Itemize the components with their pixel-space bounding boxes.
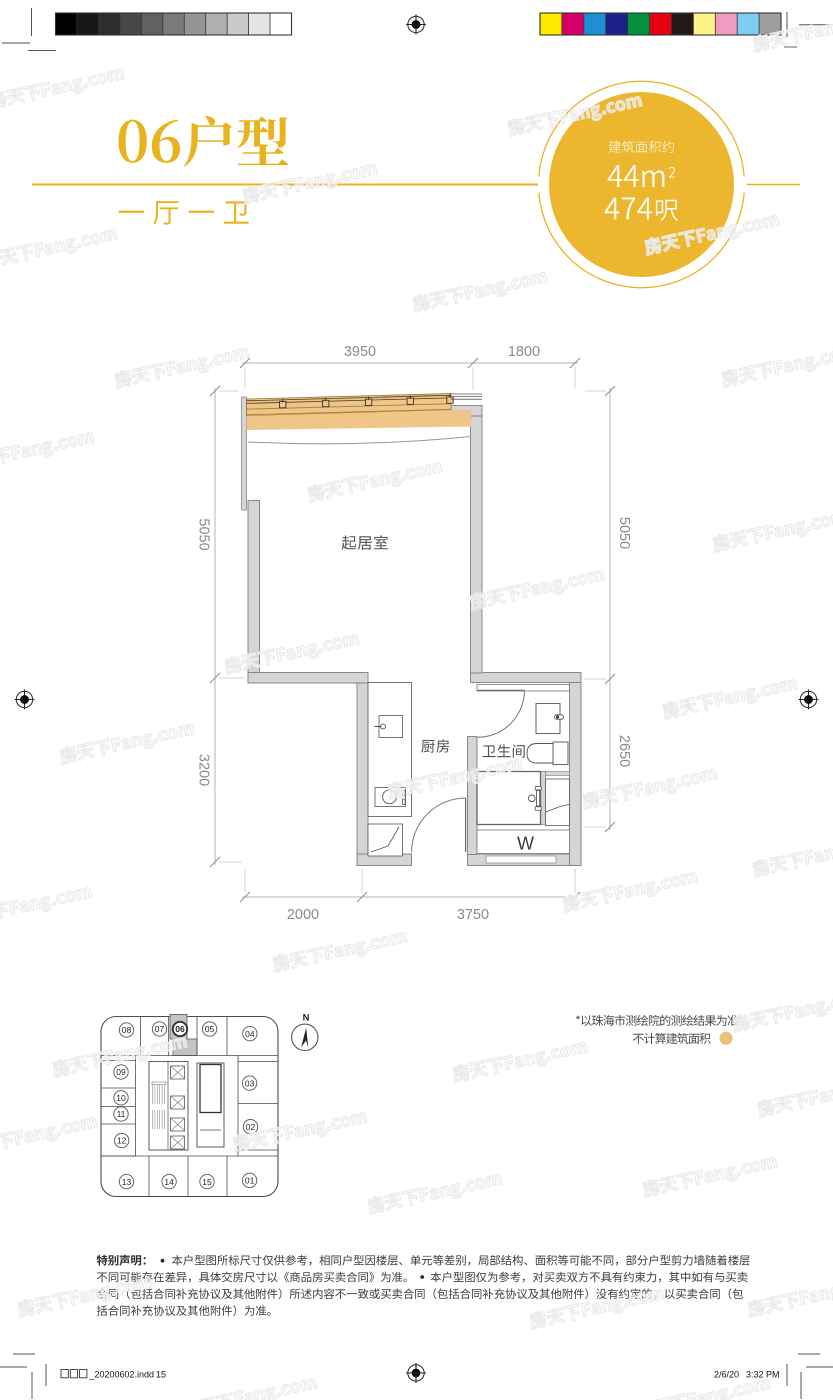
svg-text:2/6/20: 2/6/20 — [714, 1370, 739, 1380]
svg-text:12: 12 — [117, 1136, 127, 1146]
svg-text:02: 02 — [246, 1122, 256, 1132]
svg-text:5050: 5050 — [196, 518, 212, 550]
svg-text:1800: 1800 — [508, 344, 540, 360]
svg-text:N: N — [303, 1013, 310, 1024]
svg-text:06: 06 — [175, 1024, 185, 1034]
svg-text:11: 11 — [117, 1109, 126, 1119]
svg-text:3750: 3750 — [457, 907, 489, 923]
svg-text:3200: 3200 — [196, 754, 212, 786]
svg-text:10: 10 — [116, 1093, 126, 1103]
svg-text:14: 14 — [164, 1177, 174, 1187]
svg-text:W: W — [517, 834, 534, 854]
svg-text:03: 03 — [245, 1078, 255, 1088]
svg-text:5050: 5050 — [616, 517, 632, 549]
svg-text:3:32 PM: 3:32 PM — [746, 1370, 780, 1380]
svg-text:04: 04 — [245, 1029, 255, 1039]
svg-text:_20200602.indd: _20200602.indd — [89, 1370, 155, 1380]
svg-text:07: 07 — [155, 1024, 165, 1034]
svg-text:01: 01 — [245, 1176, 255, 1186]
svg-text:05: 05 — [205, 1024, 215, 1034]
svg-text:2000: 2000 — [287, 907, 319, 923]
svg-text:09: 09 — [116, 1067, 126, 1077]
svg-text:13: 13 — [122, 1177, 132, 1187]
svg-text:15: 15 — [156, 1370, 166, 1380]
svg-text:2650: 2650 — [616, 735, 632, 767]
svg-text:3950: 3950 — [344, 344, 376, 360]
svg-text:08: 08 — [122, 1025, 132, 1035]
svg-text:15: 15 — [202, 1177, 212, 1187]
